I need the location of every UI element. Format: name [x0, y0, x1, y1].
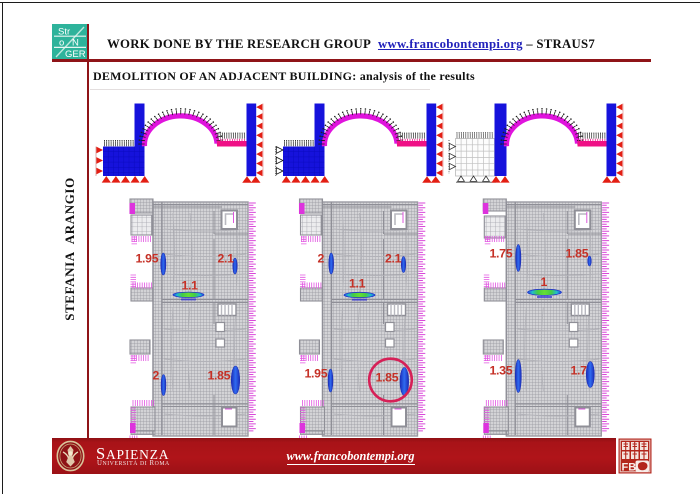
svg-text:FB: FB — [621, 461, 636, 473]
svg-text:1.1: 1.1 — [349, 277, 366, 291]
svg-text:2.1: 2.1 — [218, 252, 235, 266]
svg-text:2: 2 — [318, 252, 325, 266]
svg-text:1.1: 1.1 — [182, 279, 199, 293]
svg-text:1.85: 1.85 — [208, 369, 231, 383]
svg-text:1.95: 1.95 — [305, 367, 328, 381]
svg-text:2: 2 — [153, 369, 160, 383]
svg-text:1.7: 1.7 — [571, 364, 588, 378]
svg-text:1.75: 1.75 — [490, 247, 513, 261]
svg-text:1.85: 1.85 — [566, 247, 589, 261]
svg-text:1.35: 1.35 — [490, 364, 513, 378]
svg-text:1: 1 — [541, 275, 548, 289]
svg-text:2.1: 2.1 — [385, 252, 402, 266]
svg-text:1.85: 1.85 — [376, 371, 399, 385]
svg-text:1.95: 1.95 — [136, 252, 159, 266]
